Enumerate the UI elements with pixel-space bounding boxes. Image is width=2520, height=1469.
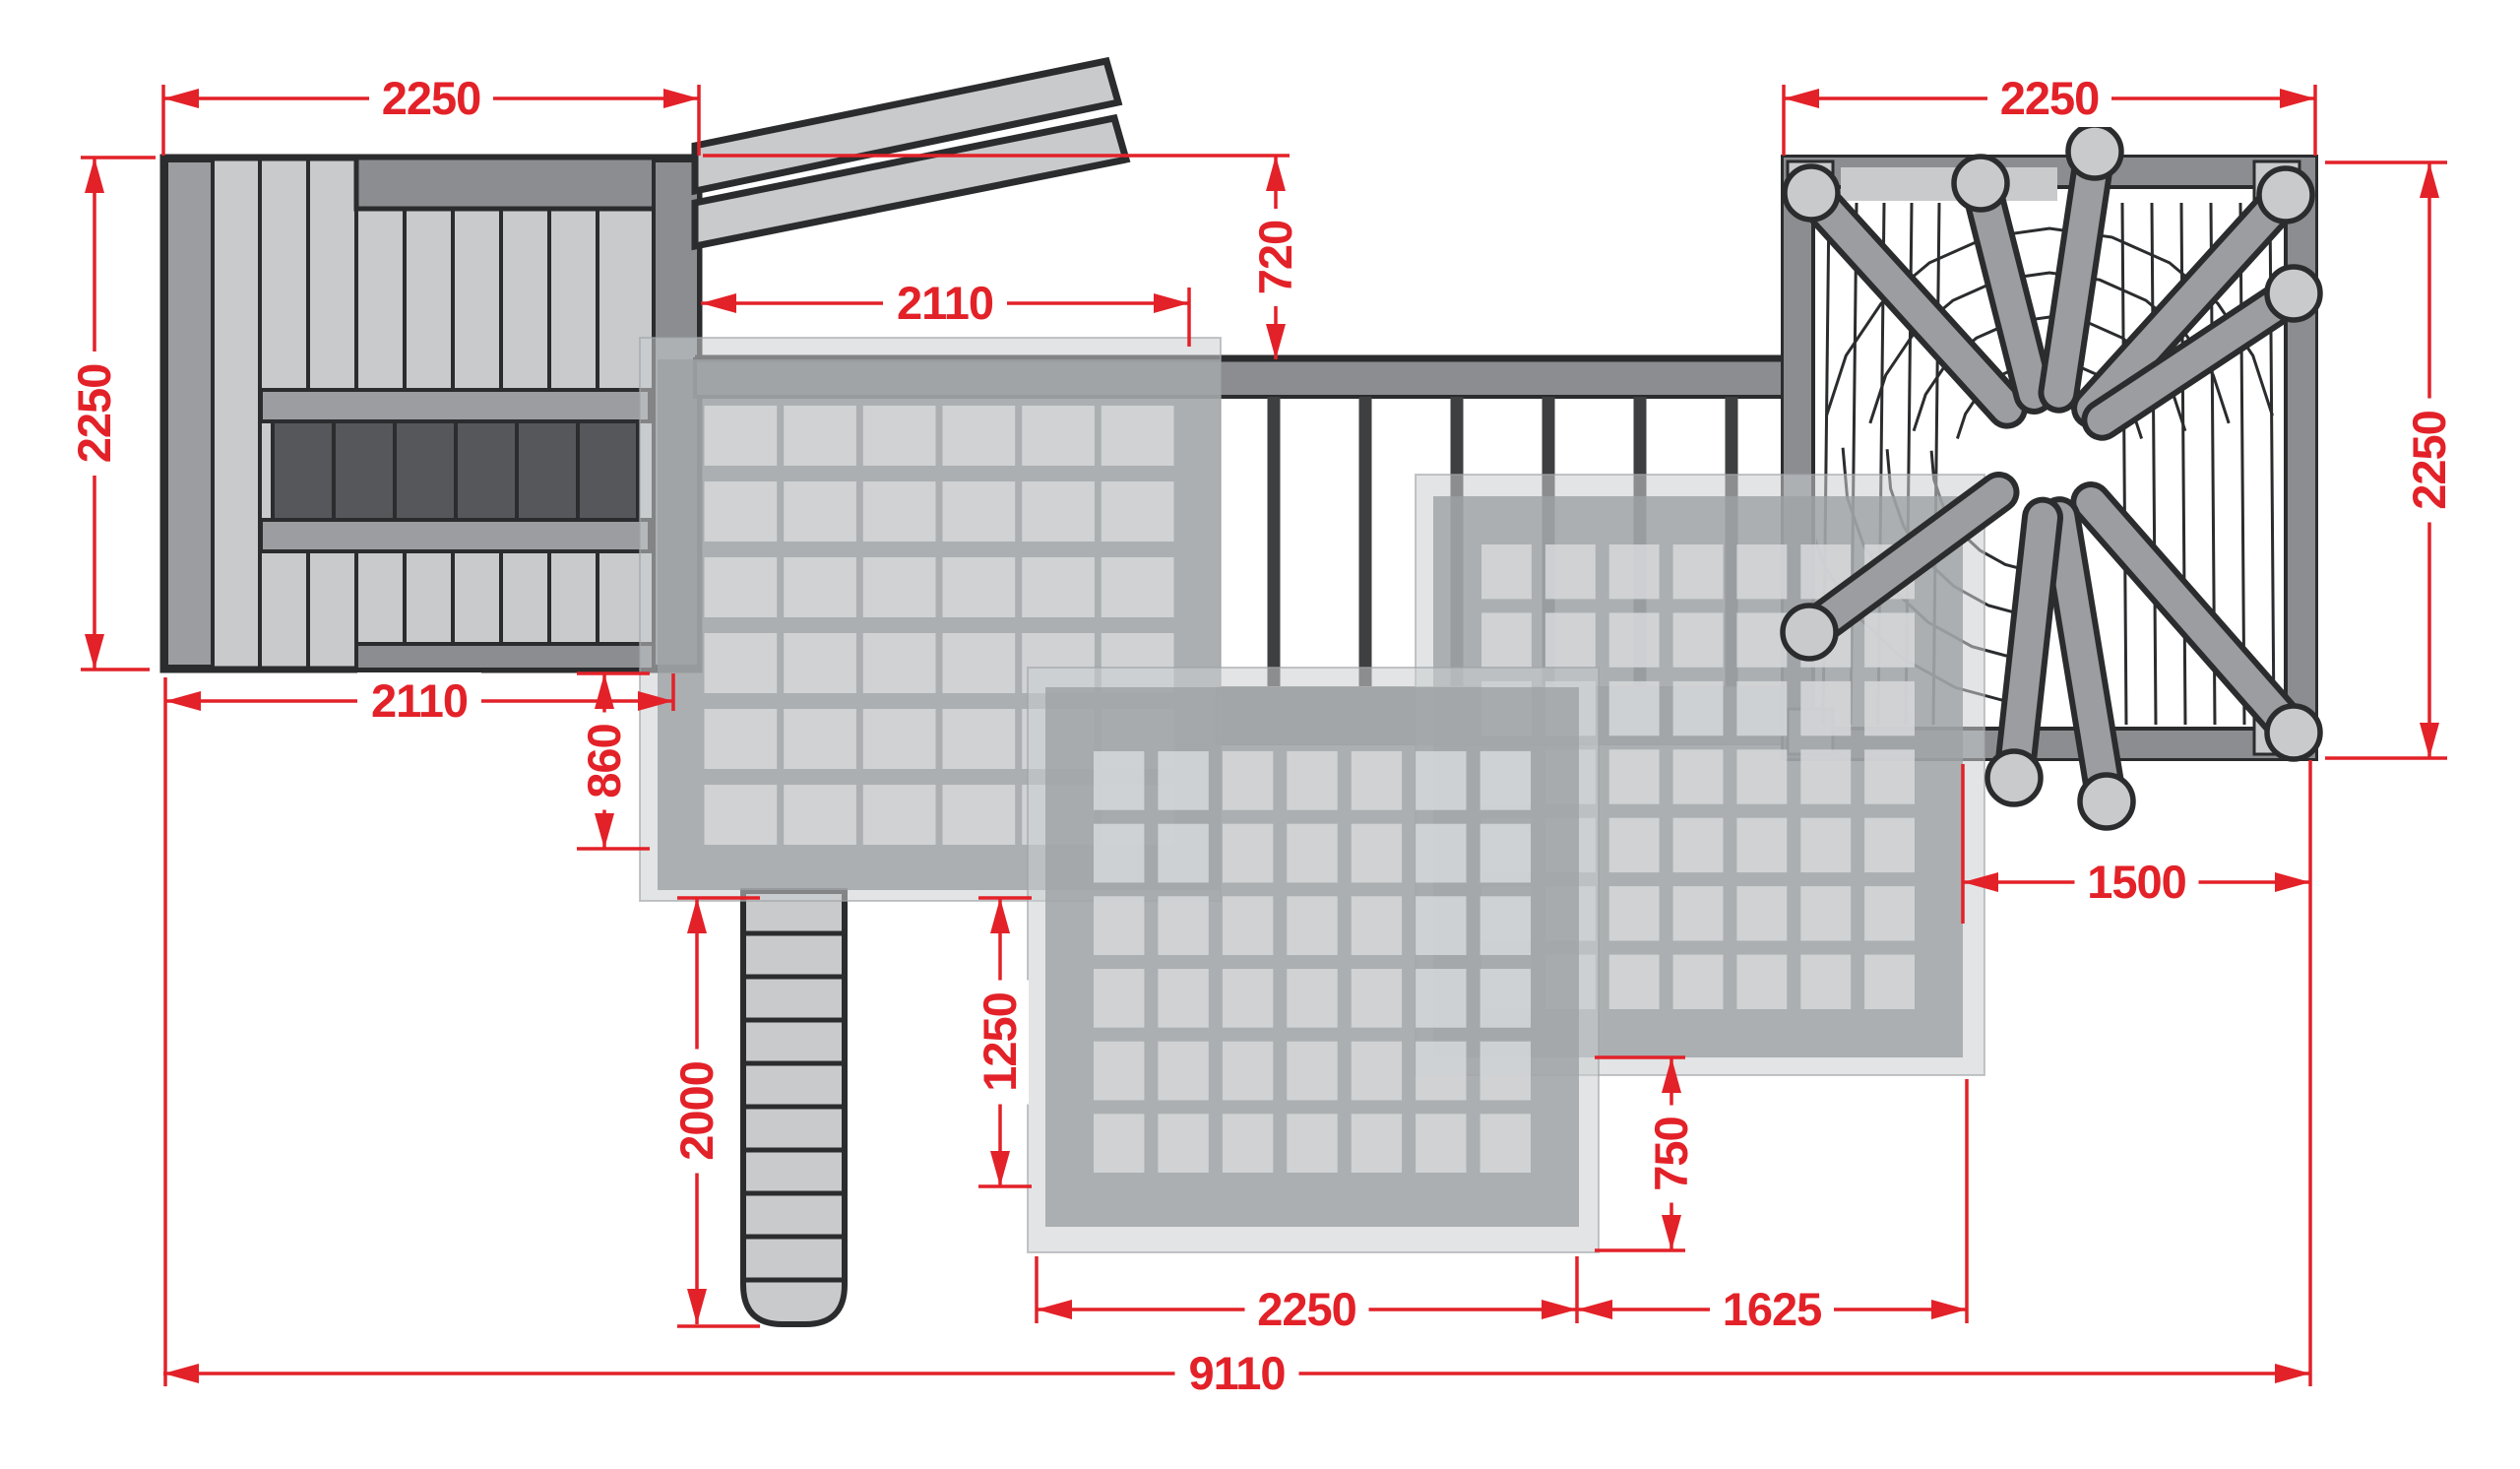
net-cell xyxy=(1158,1114,1208,1173)
net-cell xyxy=(1416,824,1466,883)
dim-net_b_drop-label: 1250 xyxy=(974,992,1026,1092)
dim-net_a_drop-label: 860 xyxy=(578,724,630,798)
net-cell xyxy=(1609,955,1660,1009)
web-post-ball xyxy=(2080,775,2133,828)
net-cell xyxy=(1736,681,1787,735)
net-cell xyxy=(1094,896,1144,955)
web-post-ball xyxy=(2068,125,2121,178)
net-cell xyxy=(1158,969,1208,1028)
net-cell xyxy=(1416,1114,1466,1173)
net-cell xyxy=(1736,612,1787,667)
net-cell xyxy=(1480,969,1531,1028)
net-cell xyxy=(1673,612,1724,667)
platform-top-wall xyxy=(356,158,699,209)
railing-post xyxy=(1359,397,1372,687)
net-cell xyxy=(1609,544,1660,599)
net-cell xyxy=(705,709,778,769)
net-cell xyxy=(1609,749,1660,803)
net-cell xyxy=(1094,1114,1144,1173)
dimension-arrow xyxy=(1154,293,1189,313)
plan-drawing: 2250225022502250211072021108602000125075… xyxy=(0,0,2520,1469)
net-cell xyxy=(943,481,1016,542)
dim-platform_bottom_width-label: 2110 xyxy=(371,674,468,727)
net-cell xyxy=(1673,818,1724,872)
dimension-arrow xyxy=(163,1364,199,1383)
net-cell xyxy=(784,785,856,845)
net-cell xyxy=(1352,751,1402,810)
net-cell xyxy=(705,785,778,845)
net-cell xyxy=(1480,1042,1531,1101)
net-cell xyxy=(705,406,778,466)
net-cell xyxy=(1673,544,1724,599)
net-cell xyxy=(1022,406,1095,466)
dimension-arrow xyxy=(1784,89,1819,108)
dim-net_c_width-label: 1625 xyxy=(1723,1283,1822,1335)
net-cell xyxy=(705,481,778,542)
platform-deck xyxy=(163,158,699,670)
dim-net_c_drop-label: 750 xyxy=(1645,1117,1697,1190)
ladder xyxy=(743,891,845,1324)
net-cell xyxy=(1416,969,1466,1028)
climbing-net-b xyxy=(1028,668,1599,1252)
net-cell xyxy=(1673,886,1724,940)
net-cell xyxy=(1800,681,1851,735)
dimension-arrow xyxy=(165,691,201,711)
dimension-arrow xyxy=(595,813,614,849)
net-cell xyxy=(1094,969,1144,1028)
web-post-ball xyxy=(2259,168,2312,222)
net-cell xyxy=(1223,751,1273,810)
net-cell xyxy=(1673,681,1724,735)
net-cell xyxy=(1352,1114,1402,1173)
hatch-bottom-rail xyxy=(261,520,650,551)
net-cell xyxy=(1736,955,1787,1009)
dim-top_right_width-label: 2250 xyxy=(2000,72,2100,124)
railing-post xyxy=(1268,397,1281,687)
net-cell xyxy=(1416,1042,1466,1101)
net-cell xyxy=(1352,969,1402,1028)
dimension-arrow xyxy=(1266,156,1286,191)
net-cell xyxy=(863,557,936,617)
net-cell xyxy=(784,633,856,693)
dimension-arrow xyxy=(990,898,1010,933)
net-cell xyxy=(1480,824,1531,883)
net-cell xyxy=(1352,1042,1402,1101)
platform-left-wall xyxy=(166,160,213,667)
net-cell xyxy=(705,557,778,617)
net-cell xyxy=(1287,969,1337,1028)
web-post-ball xyxy=(1954,157,2007,210)
net-cell xyxy=(1158,824,1208,883)
dimension-arrow xyxy=(1037,1300,1072,1319)
net-cell xyxy=(1287,751,1337,810)
net-cell xyxy=(1864,955,1915,1009)
net-cell xyxy=(1094,824,1144,883)
dim-ladder_length-label: 2000 xyxy=(670,1061,723,1161)
web-frame-light-strip xyxy=(1841,167,2057,201)
net-cell xyxy=(1480,896,1531,955)
net-cell xyxy=(943,785,1016,845)
net-cell xyxy=(1287,1114,1337,1173)
net-cell xyxy=(1864,612,1915,667)
net-cell xyxy=(1223,1042,1273,1101)
web-post-ball xyxy=(2267,706,2320,759)
dimension-arrow xyxy=(595,673,614,709)
net-cell xyxy=(863,406,936,466)
blueprint-canvas: 2250225022502250211072021108602000125075… xyxy=(0,0,2520,1469)
net-cell xyxy=(1673,955,1724,1009)
net-cell xyxy=(1736,749,1787,803)
dimension-arrow xyxy=(701,293,736,313)
net-cell xyxy=(1864,818,1915,872)
dimension-arrow xyxy=(1266,324,1286,359)
net-cell xyxy=(863,709,936,769)
net-cell xyxy=(1287,824,1337,883)
net-cell xyxy=(943,709,1016,769)
hatch-top-rail xyxy=(261,390,650,421)
dim-left_depth-label: 2250 xyxy=(68,364,120,464)
dimension-arrow xyxy=(687,1289,707,1324)
net-cell xyxy=(1480,751,1531,810)
dimension-arrow xyxy=(2420,723,2439,758)
dimension-arrow xyxy=(2420,162,2439,198)
net-cell xyxy=(1545,544,1596,599)
net-cell xyxy=(1094,751,1144,810)
net-cell xyxy=(943,557,1016,617)
net-cell xyxy=(1736,544,1787,599)
net-cell xyxy=(1158,751,1208,810)
web-post-ball xyxy=(1987,751,2041,804)
net-cell xyxy=(1094,1042,1144,1101)
dimension-arrow xyxy=(1662,1215,1681,1250)
net-cell xyxy=(1673,749,1724,803)
web-post-ball xyxy=(1785,166,1838,220)
dimension-arrow xyxy=(1542,1300,1577,1319)
net-cell xyxy=(1800,955,1851,1009)
net-cell xyxy=(1352,896,1402,955)
dimension-arrow xyxy=(990,1151,1010,1186)
net-cell xyxy=(1800,818,1851,872)
net-cell xyxy=(784,406,856,466)
net-cell xyxy=(1736,818,1787,872)
net-cell xyxy=(1800,886,1851,940)
net-cell xyxy=(1480,1114,1531,1173)
net-cell xyxy=(1223,824,1273,883)
net-cell xyxy=(943,406,1016,466)
net-cell xyxy=(1223,1114,1273,1173)
net-cell xyxy=(943,633,1016,693)
net-cell xyxy=(1609,681,1660,735)
net-cell xyxy=(1864,886,1915,940)
net-cell xyxy=(1022,557,1095,617)
net-cell xyxy=(705,633,778,693)
dim-top_left_width-label: 2250 xyxy=(382,72,481,124)
dim-web_tower_offset-label: 1500 xyxy=(2087,856,2186,908)
dim-slide_offset-label: 720 xyxy=(1249,221,1301,294)
dimension-arrow xyxy=(2275,872,2310,892)
dimension-arrow xyxy=(687,898,707,933)
net-cell xyxy=(1736,886,1787,940)
web-post-ball xyxy=(2267,267,2320,320)
web-post-ball xyxy=(1783,606,1836,659)
net-cell xyxy=(1287,896,1337,955)
net-cell xyxy=(1158,1042,1208,1101)
dimension-arrow xyxy=(1577,1300,1612,1319)
net-cell xyxy=(1545,612,1596,667)
net-cell xyxy=(1481,612,1532,667)
platform-bottom-wall xyxy=(356,644,654,670)
net-cell xyxy=(1609,818,1660,872)
dimension-arrow xyxy=(85,158,104,193)
dimension-arrow xyxy=(2280,89,2315,108)
net-cell xyxy=(863,633,936,693)
net-cell xyxy=(863,481,936,542)
net-cell xyxy=(784,557,856,617)
net-cell xyxy=(1864,681,1915,735)
net-cell xyxy=(1223,969,1273,1028)
dimension-arrow xyxy=(85,634,104,670)
net-cell xyxy=(1609,886,1660,940)
net-cell xyxy=(784,709,856,769)
net-cell xyxy=(1102,406,1174,466)
dim-net_b_width-label: 2250 xyxy=(1257,1283,1356,1335)
net-cell xyxy=(1158,896,1208,955)
dim-total_width-label: 9110 xyxy=(1189,1347,1286,1399)
net-cell xyxy=(1223,896,1273,955)
net-cell xyxy=(1416,896,1466,955)
net-cell xyxy=(1416,751,1466,810)
dimension-arrow xyxy=(2275,1364,2310,1383)
net-cell xyxy=(1481,544,1532,599)
dimension-arrow xyxy=(663,89,699,108)
dimension-arrow xyxy=(1931,1300,1967,1319)
net-cell xyxy=(1287,1042,1337,1101)
slide-rails xyxy=(695,61,1126,246)
net-cell xyxy=(1102,557,1174,617)
net-cell xyxy=(863,785,936,845)
net-cell xyxy=(1864,749,1915,803)
net-cell xyxy=(1102,481,1174,542)
dim-slide_length-label: 2110 xyxy=(897,277,993,329)
dimension-arrow xyxy=(163,89,199,108)
net-cell xyxy=(1800,749,1851,803)
net-cell xyxy=(1609,612,1660,667)
dim-right_depth-label: 2250 xyxy=(2403,411,2455,510)
net-cell xyxy=(1022,481,1095,542)
net-cell xyxy=(1352,824,1402,883)
net-cell xyxy=(784,481,856,542)
